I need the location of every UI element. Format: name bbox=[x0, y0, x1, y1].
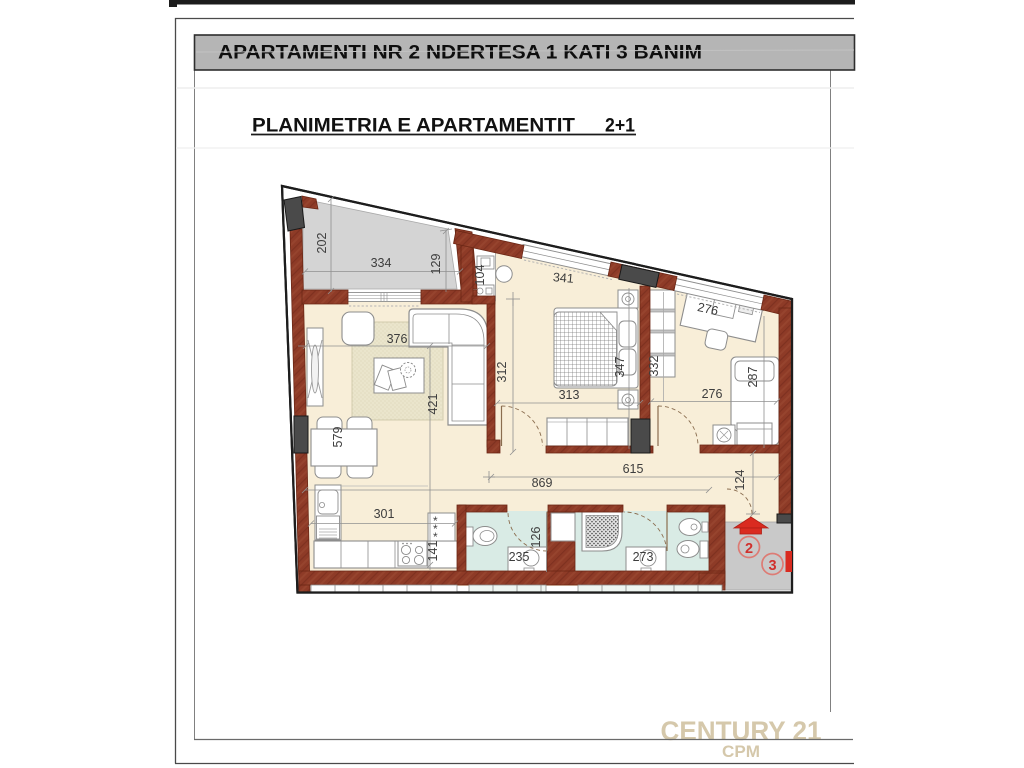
svg-text:347: 347 bbox=[613, 357, 627, 378]
svg-text:APARTAMENTI NR 2 NDERTESA 1 KA: APARTAMENTI NR 2 NDERTESA 1 KATI 3 BANIM bbox=[218, 42, 702, 64]
svg-text:615: 615 bbox=[623, 462, 644, 476]
svg-text:PLANIMETRIA E APARTAMENTIT: PLANIMETRIA E APARTAMENTIT bbox=[252, 115, 575, 137]
svg-text:313: 313 bbox=[559, 388, 580, 402]
svg-text:341: 341 bbox=[552, 270, 574, 286]
svg-text:332: 332 bbox=[647, 356, 661, 377]
svg-text:2: 2 bbox=[745, 541, 753, 557]
svg-text:124: 124 bbox=[733, 470, 747, 491]
svg-text:276: 276 bbox=[702, 387, 723, 401]
svg-text:CPM: CPM bbox=[722, 742, 760, 761]
svg-text:202: 202 bbox=[315, 233, 329, 254]
svg-text:579: 579 bbox=[331, 427, 345, 448]
svg-text:312: 312 bbox=[495, 362, 509, 383]
svg-text:2+1: 2+1 bbox=[605, 115, 635, 137]
svg-text:334: 334 bbox=[371, 256, 392, 270]
svg-text:126: 126 bbox=[529, 527, 543, 548]
svg-text:287: 287 bbox=[746, 367, 760, 388]
svg-text:129: 129 bbox=[429, 254, 443, 275]
svg-text:3: 3 bbox=[768, 558, 776, 574]
svg-text:235: 235 bbox=[509, 550, 530, 564]
svg-text:104: 104 bbox=[473, 265, 487, 286]
svg-text:301: 301 bbox=[374, 507, 395, 521]
svg-text:869: 869 bbox=[532, 476, 553, 490]
svg-text:421: 421 bbox=[426, 394, 440, 415]
svg-text:141: 141 bbox=[426, 541, 440, 562]
svg-text:376: 376 bbox=[387, 332, 408, 346]
svg-text:273: 273 bbox=[633, 550, 654, 564]
